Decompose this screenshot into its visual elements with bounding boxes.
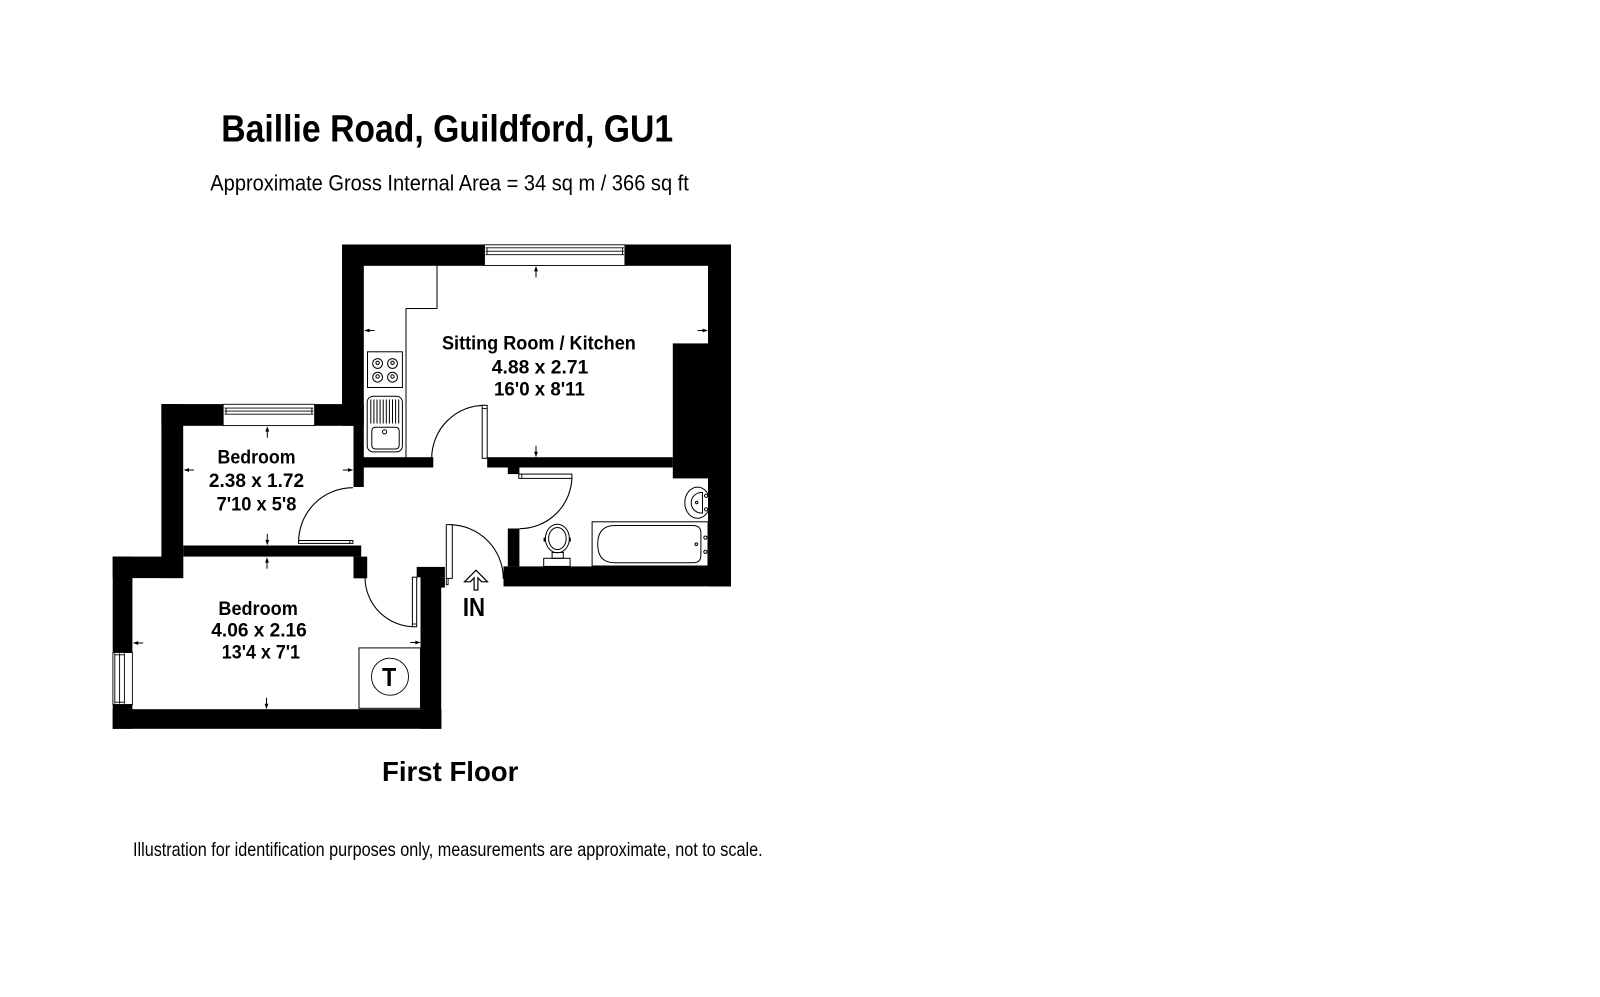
svg-text:Approximate Gross Internal Are: Approximate Gross Internal Area = 34 sq … — [210, 170, 689, 195]
svg-text:T: T — [382, 664, 397, 692]
svg-text:4.88 x 2.71: 4.88 x 2.71 — [492, 357, 589, 378]
svg-text:4.06 x 2.16: 4.06 x 2.16 — [211, 621, 306, 642]
svg-text:Baillie Road, Guildford, GU1: Baillie Road, Guildford, GU1 — [221, 108, 673, 150]
svg-text:16'0 x 8'11: 16'0 x 8'11 — [494, 380, 585, 401]
svg-text:IN: IN — [463, 594, 485, 622]
svg-text:Bedroom: Bedroom — [218, 599, 297, 620]
svg-text:Illustration for identificatio: Illustration for identification purposes… — [133, 839, 763, 861]
svg-text:First Floor: First Floor — [382, 756, 519, 787]
svg-text:2.38 x 1.72: 2.38 x 1.72 — [209, 471, 304, 492]
svg-text:7'10 x 5'8: 7'10 x 5'8 — [217, 494, 297, 515]
svg-text:13'4 x 7'1: 13'4 x 7'1 — [222, 643, 301, 664]
svg-text:Bedroom: Bedroom — [218, 447, 296, 468]
svg-text:Sitting Room / Kitchen: Sitting Room / Kitchen — [442, 334, 636, 355]
